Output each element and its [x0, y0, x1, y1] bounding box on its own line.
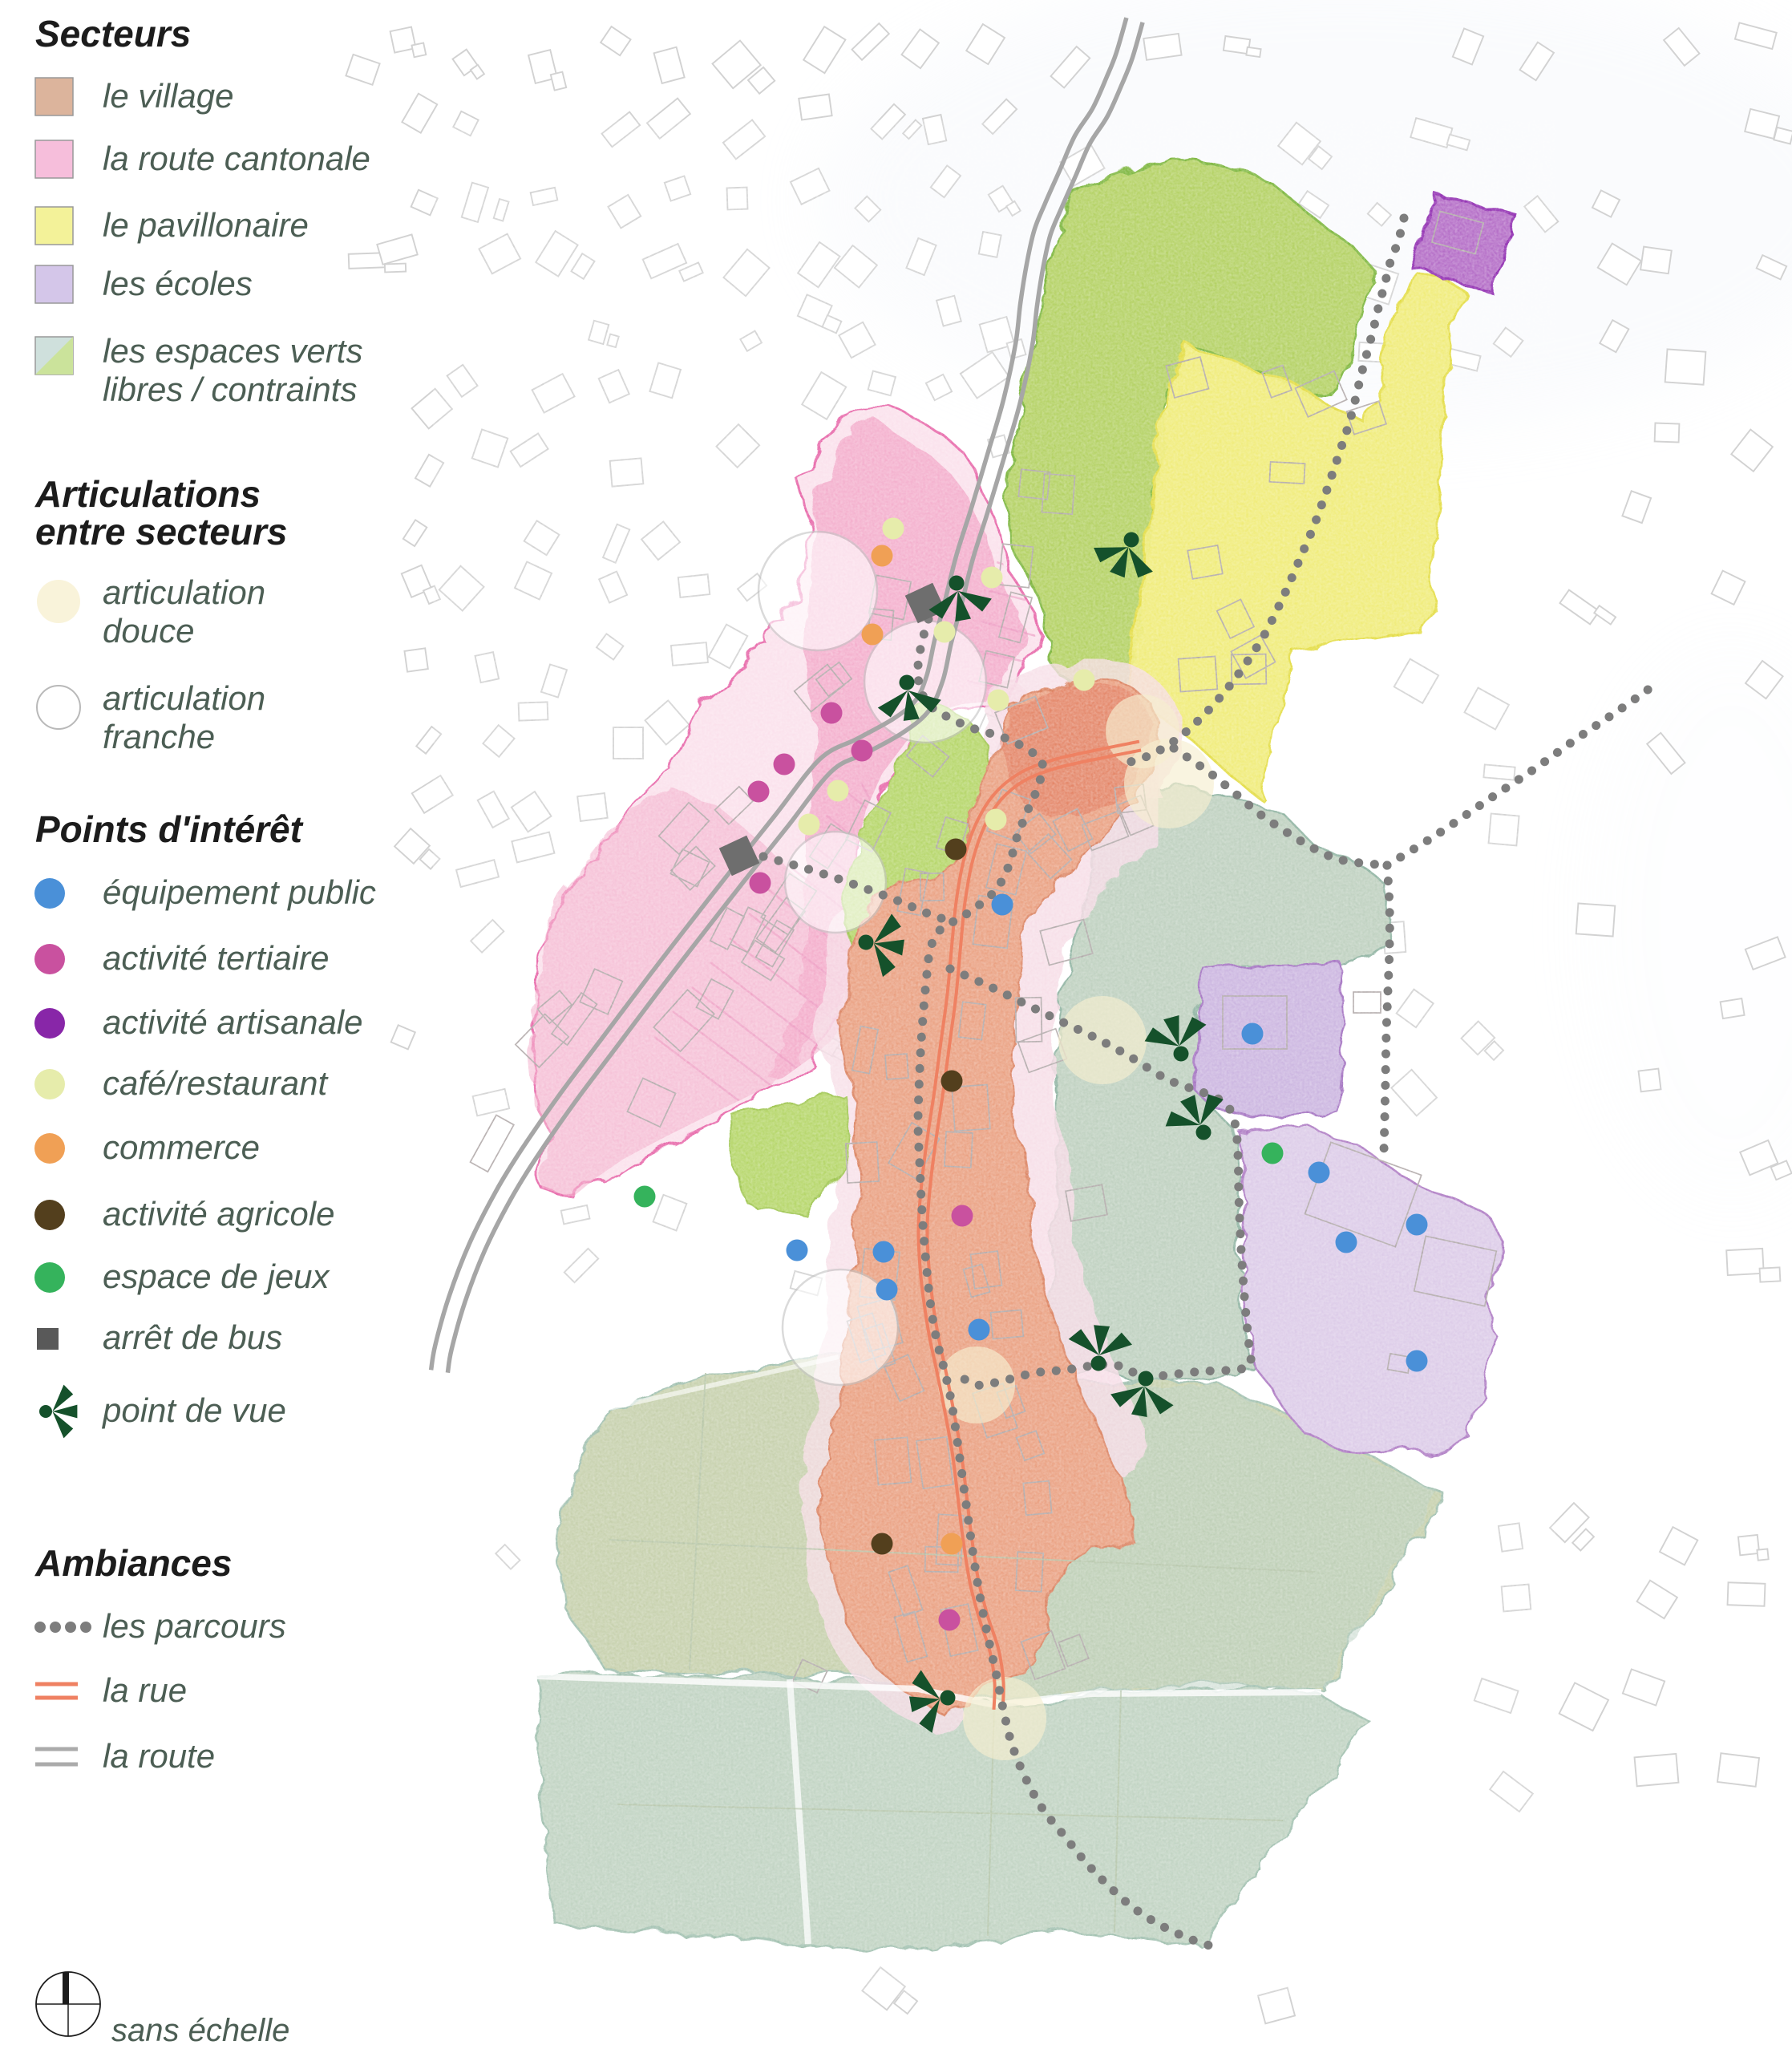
svg-text:la route cantonale: la route cantonale — [103, 140, 370, 177]
svg-text:les écoles: les écoles — [103, 265, 253, 302]
svg-text:la route: la route — [103, 1737, 215, 1775]
svg-text:douce: douce — [103, 612, 194, 650]
svg-text:le village: le village — [103, 77, 233, 115]
svg-text:espace de jeux: espace de jeux — [103, 1257, 331, 1295]
svg-text:café/restaurant: café/restaurant — [103, 1064, 329, 1102]
svg-text:Secteurs: Secteurs — [35, 13, 191, 55]
svg-text:activité tertiaire: activité tertiaire — [103, 939, 329, 977]
svg-text:Articulations: Articulations — [34, 473, 261, 515]
svg-text:libres / contraints: libres / contraints — [103, 371, 357, 408]
svg-text:activité artisanale: activité artisanale — [103, 1003, 363, 1041]
svg-text:Points d'intérêt: Points d'intérêt — [35, 808, 304, 850]
svg-text:équipement public: équipement public — [103, 873, 376, 911]
svg-text:la rue: la rue — [103, 1671, 187, 1709]
svg-text:les espaces verts: les espaces verts — [103, 332, 362, 370]
svg-text:franche: franche — [103, 718, 215, 755]
svg-text:entre secteurs: entre secteurs — [35, 511, 288, 553]
svg-text:arrêt de bus: arrêt de bus — [103, 1318, 282, 1356]
svg-text:le pavillonaire: le pavillonaire — [103, 206, 309, 244]
svg-text:point de vue: point de vue — [101, 1391, 286, 1429]
svg-text:articulation: articulation — [103, 679, 265, 717]
svg-text:articulation: articulation — [103, 573, 265, 611]
svg-text:les parcours: les parcours — [103, 1607, 286, 1645]
svg-text:Ambiances: Ambiances — [34, 1542, 232, 1584]
svg-text:commerce: commerce — [103, 1128, 260, 1166]
svg-text:sans échelle: sans échelle — [111, 2013, 289, 2048]
svg-text:activité agricole: activité agricole — [103, 1195, 334, 1233]
